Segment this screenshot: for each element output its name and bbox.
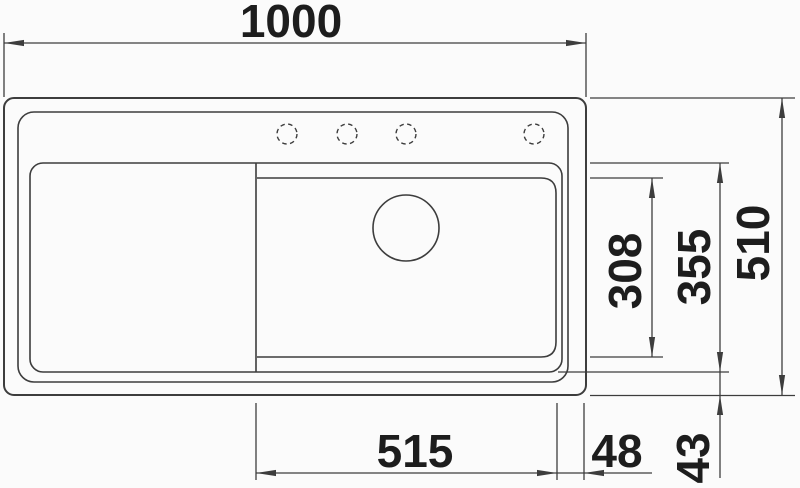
dim-label-bowl-depth-outer: 355 <box>668 229 720 306</box>
dim-label-bowl-to-bottom-edge: 43 <box>667 432 719 483</box>
dim-label-bowl-to-right-edge: 48 <box>591 425 642 477</box>
arrowhead-left-icon <box>4 40 24 46</box>
arrowhead-down-icon <box>779 375 785 395</box>
dim-label-bowl-width: 515 <box>377 425 454 477</box>
faucet-hole-icon <box>277 124 297 144</box>
dim-overall-width: 1000 <box>4 0 586 97</box>
dim-bowl-width: 515 <box>256 403 557 480</box>
drain-hole <box>373 195 439 261</box>
dim-label-bowl-depth-inner: 308 <box>599 233 651 310</box>
sink-outer-edge <box>4 98 586 395</box>
arrowhead-down-icon <box>649 337 655 357</box>
arrowhead-up-icon <box>779 98 785 118</box>
bowl-inner-edge <box>257 178 556 357</box>
dim-bowl-to-bottom-edge: 43 <box>667 372 723 484</box>
faucet-hole-icon <box>337 124 357 144</box>
dim-label-overall-width: 1000 <box>240 0 342 47</box>
arrowhead-right-icon <box>537 470 557 476</box>
arrowhead-right-icon <box>566 40 586 46</box>
arrowhead-left-icon <box>256 470 276 476</box>
sink-dimension-drawing: 1000 510 355 308 <box>0 0 800 488</box>
dim-label-overall-depth: 510 <box>727 205 779 282</box>
sink-work-area-edge <box>30 163 562 372</box>
faucet-hole-icon <box>524 124 544 144</box>
faucet-holes <box>277 124 544 144</box>
arrowhead-down-icon <box>717 352 723 372</box>
sink-rim-inner-edge <box>18 112 568 382</box>
dim-bowl-to-right-edge: 48 <box>557 403 652 480</box>
arrowhead-up-icon <box>717 395 723 415</box>
drawing-canvas: 1000 510 355 308 <box>0 0 800 488</box>
sink-outline <box>4 98 586 395</box>
faucet-hole-icon <box>396 124 416 144</box>
arrowhead-up-icon <box>649 178 655 198</box>
dim-bowl-depth-inner: 308 <box>590 178 663 357</box>
arrowhead-up-icon <box>717 163 723 183</box>
